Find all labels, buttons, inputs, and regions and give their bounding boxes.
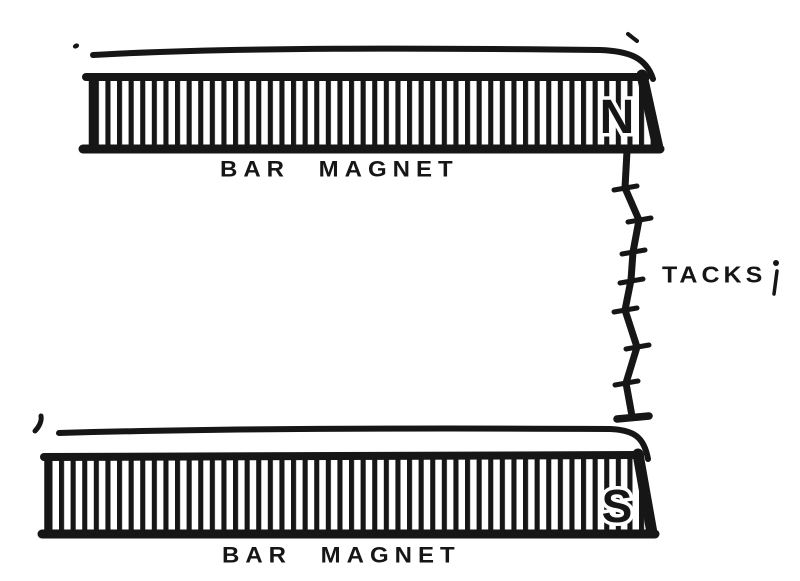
tack-chain [614,151,651,419]
tack-head [622,250,645,254]
diagram-canvas: N [0,0,800,581]
bottom-magnet-hatched-face [45,456,651,531]
tack-head [615,381,638,385]
ink-speck [72,42,80,49]
ink-tick [628,34,637,41]
bottom-magnet-caption: BAR MAGNET [222,543,461,569]
bottom-magnet: S [35,416,655,536]
tack-head [626,345,649,349]
top-magnet: N [72,34,660,149]
top-magnet-hatched-face [88,79,657,145]
ink-speck [35,416,41,431]
figure-bar-magnets-and-tacks: N [0,0,800,581]
top-magnet-caption: BAR MAGNET [220,157,459,183]
tack-head [614,186,637,190]
tack-base [617,416,649,419]
pole-s-label: S [602,480,633,532]
tack-head [614,308,637,312]
tack-head [620,279,643,283]
pole-n-label: N [600,91,635,144]
ink-artifact [773,260,779,294]
tacks-caption: TACKS [662,262,766,289]
bottom-magnet-top-border [44,455,640,457]
tack-head [628,218,651,222]
